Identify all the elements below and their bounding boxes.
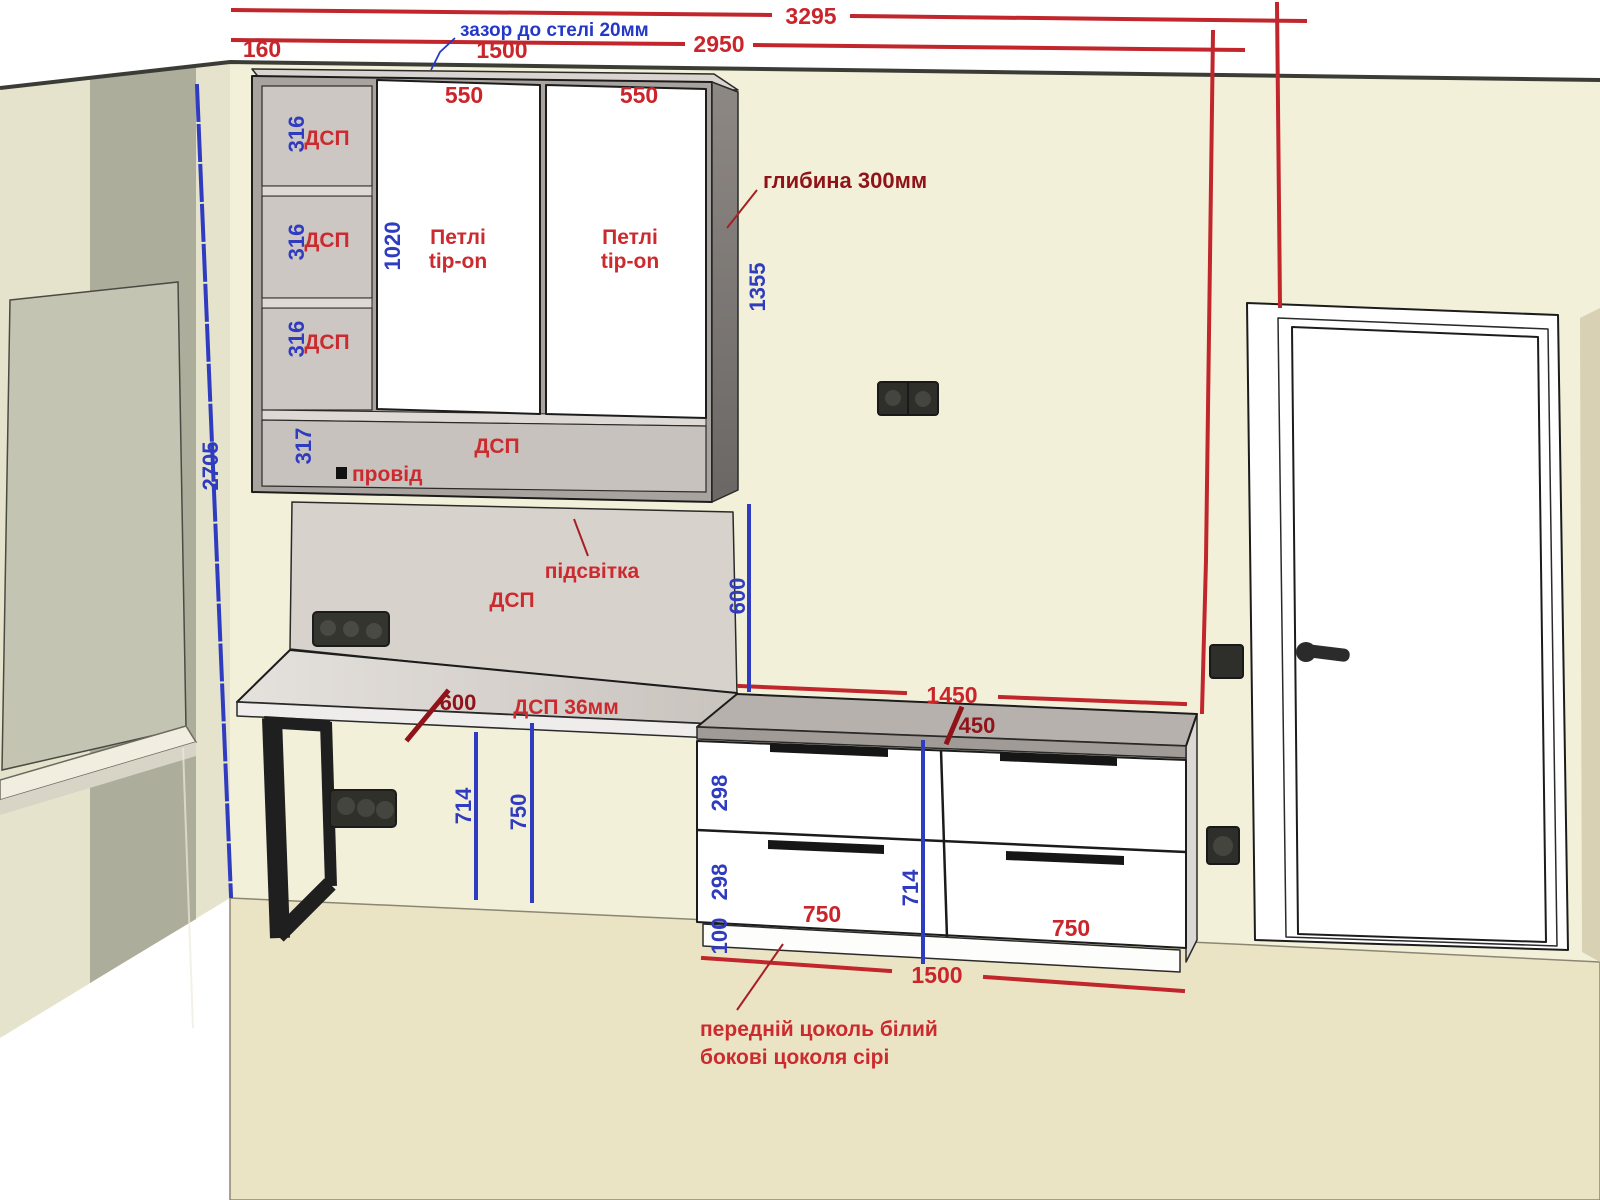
label-dsp-bottom: ДСП: [474, 435, 519, 458]
dim-316-1: 316: [284, 116, 309, 153]
label-hinge-left-2: tip-on: [429, 250, 487, 273]
dim-714-unit: 714: [898, 869, 923, 906]
label-hinge-right-2: tip-on: [601, 250, 659, 273]
dim-750-right: 750: [1052, 915, 1090, 941]
label-hinge-left-1: Петлі: [430, 226, 486, 249]
note-gap-ceiling: зазор до стелі 20мм: [460, 20, 649, 41]
underdesk-outlet-triple: [326, 790, 396, 827]
note-plinth-2: бокові цоколя сірі: [700, 1046, 889, 1069]
outlet-near-door: [1207, 827, 1239, 864]
dim-316-2: 316: [284, 224, 309, 261]
dim-600-desk: 600: [440, 690, 477, 715]
dim-2705: 2705: [198, 442, 223, 491]
dim-1450: 1450: [926, 682, 977, 708]
dim-1355: 1355: [745, 263, 770, 312]
shelf-board-2: [262, 298, 372, 308]
right-wall-return: [1580, 308, 1600, 962]
wire-outlet-square: [336, 467, 347, 479]
light-switch: [1210, 645, 1243, 678]
dim-3295: 3295: [785, 3, 836, 29]
furniture-drawing: 3295 2950 160 1500 550 550 зазор до стел…: [0, 0, 1600, 1200]
entry-door: [1247, 303, 1568, 950]
dim-1020: 1020: [380, 222, 405, 271]
label-dsp-3: ДСП: [304, 331, 349, 354]
label-dsp-panel: ДСП: [489, 589, 534, 612]
dim-450: 450: [959, 713, 996, 738]
dim-1500-bottom: 1500: [911, 962, 962, 988]
dim-714-desk: 714: [451, 787, 476, 824]
label-dsp-1: ДСП: [304, 127, 349, 150]
dim-600-panel: 600: [725, 578, 750, 615]
dim-316-3: 316: [284, 321, 309, 358]
dim-100: 100: [707, 918, 732, 955]
double-outlet-wall: [878, 382, 938, 415]
dim-550-right: 550: [620, 82, 658, 108]
shelf-board-1: [262, 186, 372, 196]
window-niche: [2, 282, 186, 770]
note-desktop-material: ДСП 36мм: [513, 696, 618, 719]
dim-750-desk: 750: [506, 794, 531, 831]
dim-160: 160: [243, 36, 281, 62]
dim-2950: 2950: [693, 31, 744, 57]
dim-750-left: 750: [803, 901, 841, 927]
panel-outlet-triple: [313, 612, 389, 646]
unit-side-panel: [1186, 714, 1197, 962]
note-depth: глибина 300мм: [763, 168, 927, 193]
dim-298-top: 298: [707, 775, 732, 812]
dim-317: 317: [291, 428, 316, 465]
dim-298-bottom: 298: [707, 864, 732, 901]
drawing-canvas: 3295 2950 160 1500 550 550 зазор до стел…: [0, 0, 1600, 1200]
note-wire: провід: [352, 463, 422, 486]
label-dsp-2: ДСП: [304, 229, 349, 252]
shelf-cell-3: [262, 308, 372, 410]
note-plinth-1: передній цоколь білий: [700, 1018, 938, 1041]
cabinet-side-panel: [712, 82, 738, 502]
label-hinge-right-1: Петлі: [602, 226, 658, 249]
note-backlight: підсвітка: [545, 560, 640, 583]
door-leaf: [1292, 327, 1546, 942]
dim-550-left: 550: [445, 82, 483, 108]
